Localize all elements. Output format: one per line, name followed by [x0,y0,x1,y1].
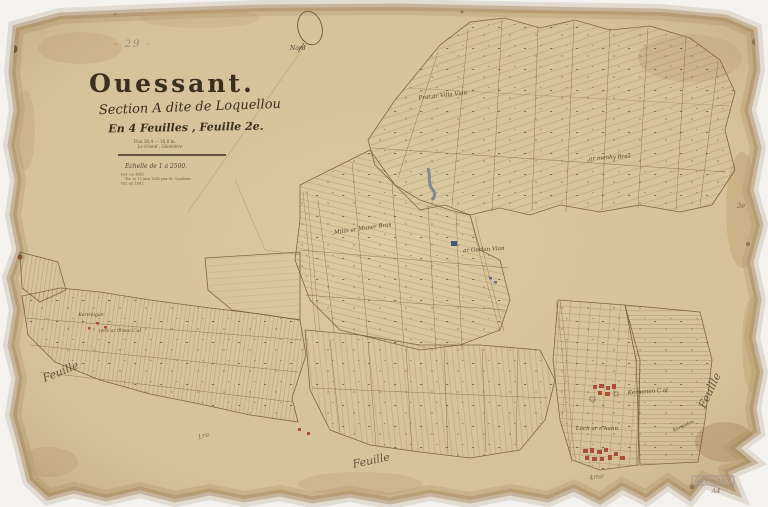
note-line-3: Ver. en 1842. [120,182,145,186]
well-icon [494,281,497,284]
note-line-2: Ter. le 15 juin 1842 par M. Gauthier. [125,177,191,181]
map-label: Loch ar c'hann [575,426,619,432]
pond-icon [451,241,457,246]
map-label: porz ar hraou C.al [99,328,142,334]
scale-line: Echelle de 1 à 2500. [124,163,187,170]
sheet-ref-right: 3e [737,202,746,210]
cadastral-map-scan: Nord - 29 - Ouessant. Section A dite de … [0,0,768,507]
surveyor-line: Le Grand , Géomètre [137,144,183,149]
north-label: Nord [289,45,306,52]
sheets-line: En 4 Feuilles , Feuille 2e. [107,120,264,136]
stamp-text: OUESSANT [695,479,730,485]
well-icon [489,277,492,280]
stamp-annotation: A4 [711,487,721,495]
scanned-map-page: Nord - 29 - Ouessant. Section A dite de … [0,0,768,507]
note-line-1: Lev. en 1841. [121,173,145,177]
pencil-folio-number: - 29 - [114,39,152,50]
map-title: Ouessant. [89,69,255,98]
map-label: Kervinigan [77,312,103,318]
